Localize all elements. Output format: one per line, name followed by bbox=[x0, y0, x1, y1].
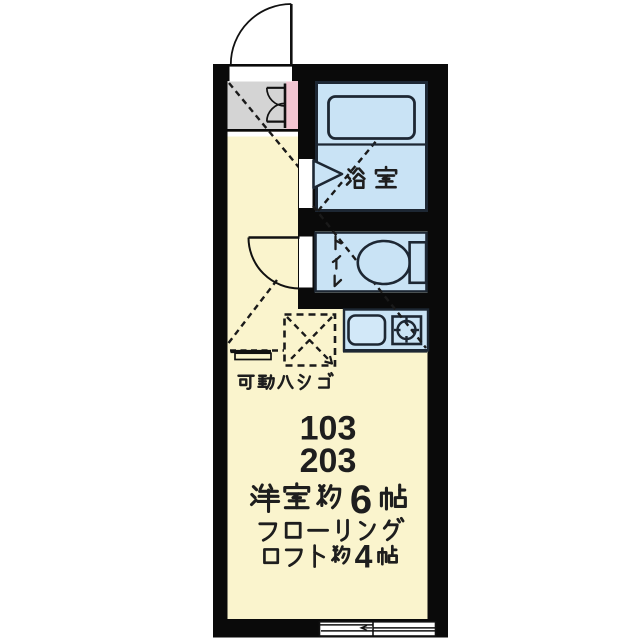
svg-text:203: 203 bbox=[300, 442, 357, 480]
svg-text:4: 4 bbox=[355, 539, 373, 575]
svg-text:6: 6 bbox=[350, 478, 372, 522]
